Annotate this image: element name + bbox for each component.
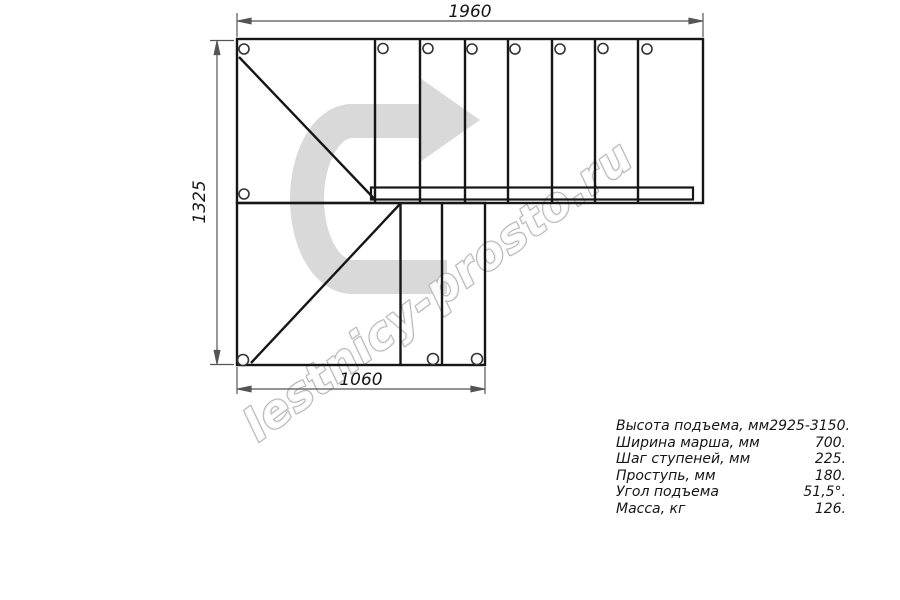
spec-row-mass: Масса, кг 126. [616,501,846,518]
dim-arrow [471,386,484,392]
spec-row-angle: Угол подъема 51,5°. [616,484,846,501]
spec-value: 2925-3150. [769,418,850,435]
spec-value: 700. [815,435,846,452]
arrow-head [420,78,480,162]
dim-arrow [214,351,220,364]
spec-value: 225. [815,451,846,468]
hole [423,44,433,54]
spec-label: Высота подъема, мм [616,418,769,435]
dim-arrow [238,386,251,392]
dim-label-bottom: 1060 [339,370,382,390]
hole [555,44,565,54]
spec-label: Шаг ступеней, мм [616,451,750,468]
spec-label: Ширина марша, мм [616,435,760,452]
spec-value: 126. [815,501,846,518]
spec-label: Угол подъема [616,484,719,501]
dim-label-top: 1960 [448,2,491,22]
dim-arrow [689,18,702,24]
hole [642,44,652,54]
dim-arrow [214,42,220,55]
hole [239,44,249,54]
dim-label-left: 1325 [190,180,210,223]
hole [238,355,249,366]
hole [472,354,483,365]
stair-outlines [237,39,703,365]
spec-row-tread: Проступь, мм 180. [616,468,846,485]
spec-row-height: Высота подъема, мм 2925-3150. [616,418,846,435]
spec-table: Высота подъема, мм 2925-3150. Ширина мар… [616,418,846,518]
hole [378,44,388,54]
staircase-drawing-canvas: lestnicy-prosto.ru [0,0,900,600]
spec-label: Масса, кг [616,501,685,518]
hole [510,44,520,54]
hole [598,44,608,54]
spec-row-step: Шаг ступеней, мм 225. [616,451,846,468]
spec-label: Проступь, мм [616,468,716,485]
dim-arrow [238,18,251,24]
spec-value: 51,5°. [803,484,846,501]
spec-row-width: Ширина марша, мм 700. [616,435,846,452]
hole [239,189,249,199]
hole [428,354,439,365]
hole [467,44,477,54]
spec-value: 180. [815,468,846,485]
